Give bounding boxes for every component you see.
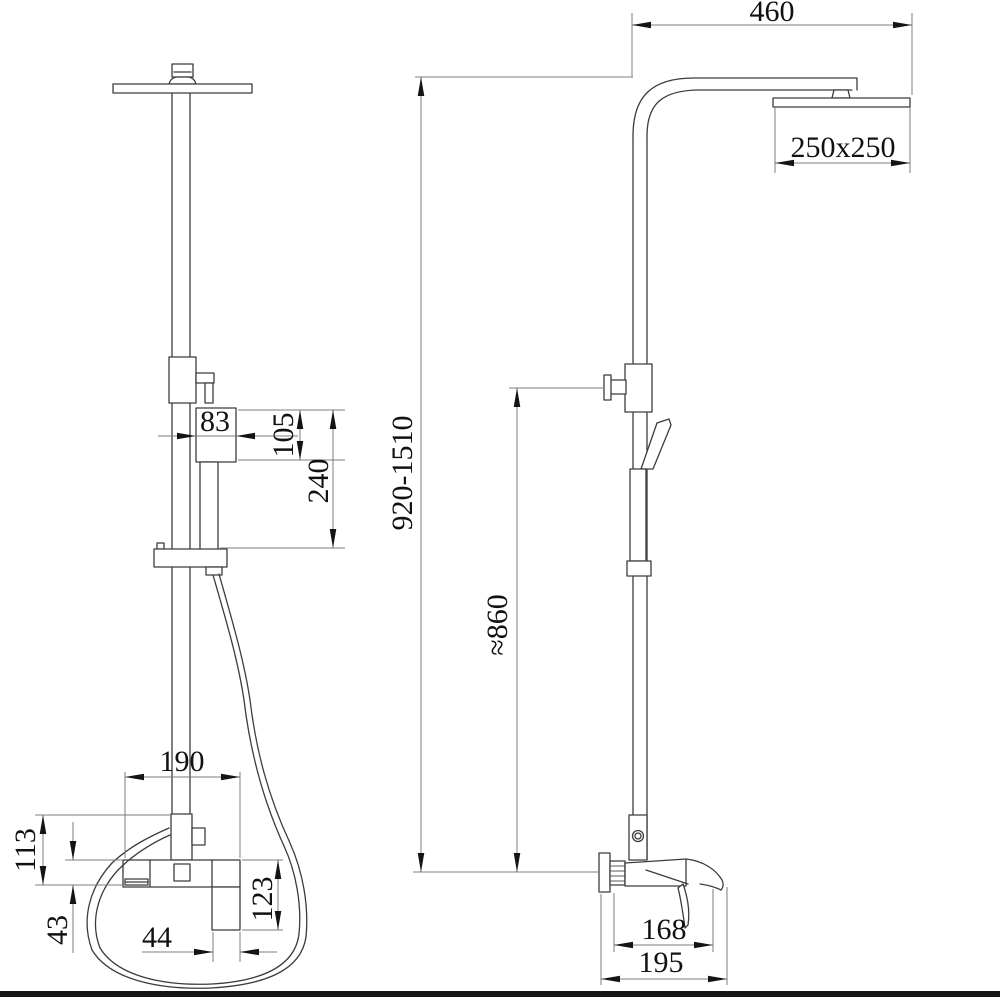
- front-mixer-knob: [192, 828, 205, 845]
- front-ball-joint: [169, 77, 196, 84]
- dim-mixer-drop: 123: [242, 860, 283, 930]
- dim-label-total-depth: 195: [639, 946, 684, 979]
- front-slider-stub: [196, 373, 214, 383]
- front-view: 83 105 240 190 113: [9, 64, 345, 988]
- dim-label-mixer-drop: 123: [246, 877, 279, 922]
- side-screw-outer: [633, 831, 644, 842]
- side-slider-bracket: [627, 561, 651, 576]
- dim-label-hose-height: ≈860: [481, 594, 514, 655]
- side-arm-inner: [647, 90, 852, 136]
- front-hand-shower-handle: [200, 462, 218, 550]
- dim-column-height: 920-1510: [386, 77, 633, 872]
- dim-hose-height: ≈860: [481, 388, 603, 872]
- dim-head-size: 250x250: [775, 107, 910, 173]
- side-hand-shower-head: [641, 419, 671, 469]
- dim-label-mixer-height: 113: [9, 828, 42, 872]
- side-overhead-shower-plate: [773, 98, 910, 107]
- side-spout-under-curve: [700, 884, 721, 890]
- dim-hand-shower-head-height: 105: [238, 410, 345, 460]
- front-ceiling-connector: [172, 64, 193, 77]
- front-slider-bracket: [154, 549, 227, 567]
- dim-label-head-size: 250x250: [791, 131, 896, 164]
- sheet-bottom-border: [0, 991, 1000, 997]
- side-wall-plate: [599, 853, 610, 892]
- side-ball-joint: [832, 90, 850, 98]
- front-mixer-handle: [212, 887, 240, 930]
- shower-hose-inner: [96, 575, 300, 984]
- side-slider-stem: [610, 380, 626, 394]
- dim-label-hand-shower-width: 83: [200, 405, 230, 438]
- front-slider-pin: [205, 383, 213, 403]
- shower-hose-outer: [87, 574, 307, 988]
- front-mixer-connector: [171, 814, 192, 860]
- dim-label-depth-to-spout: 168: [642, 913, 687, 946]
- front-slider-bracket-bump: [157, 543, 164, 549]
- dim-label-spout-body-height: 43: [41, 915, 74, 945]
- extension-lines: [213, 932, 240, 962]
- dim-label-mixer-width: 190: [160, 745, 205, 778]
- shower-system-drawing: 83 105 240 190 113: [0, 0, 1000, 1000]
- dim-spout-body-height: 43: [41, 822, 123, 953]
- dim-label-column-height: 920-1510: [386, 416, 419, 531]
- dim-depth-to-spout: 168: [614, 889, 713, 952]
- dim-label-arm-reach: 460: [750, 0, 795, 28]
- technical-drawing-sheet: 83 105 240 190 113: [0, 0, 1000, 1000]
- side-slider-box: [625, 364, 652, 412]
- dim-label-hand-shower-head-height: 105: [267, 413, 300, 458]
- side-view: 460 250x250 920-1510 ≈860 168: [386, 0, 912, 985]
- dim-arm-reach: 460: [632, 0, 912, 95]
- dim-label-hand-shower-length: 240: [302, 459, 335, 504]
- front-overhead-shower-plate: [113, 84, 252, 93]
- front-slider-box: [169, 357, 196, 403]
- dim-label-handle-width: 44: [142, 921, 172, 954]
- dim-handle-width: 44: [142, 921, 277, 962]
- side-slider-knob-cap: [604, 375, 611, 400]
- side-hand-shower-handle: [630, 469, 646, 561]
